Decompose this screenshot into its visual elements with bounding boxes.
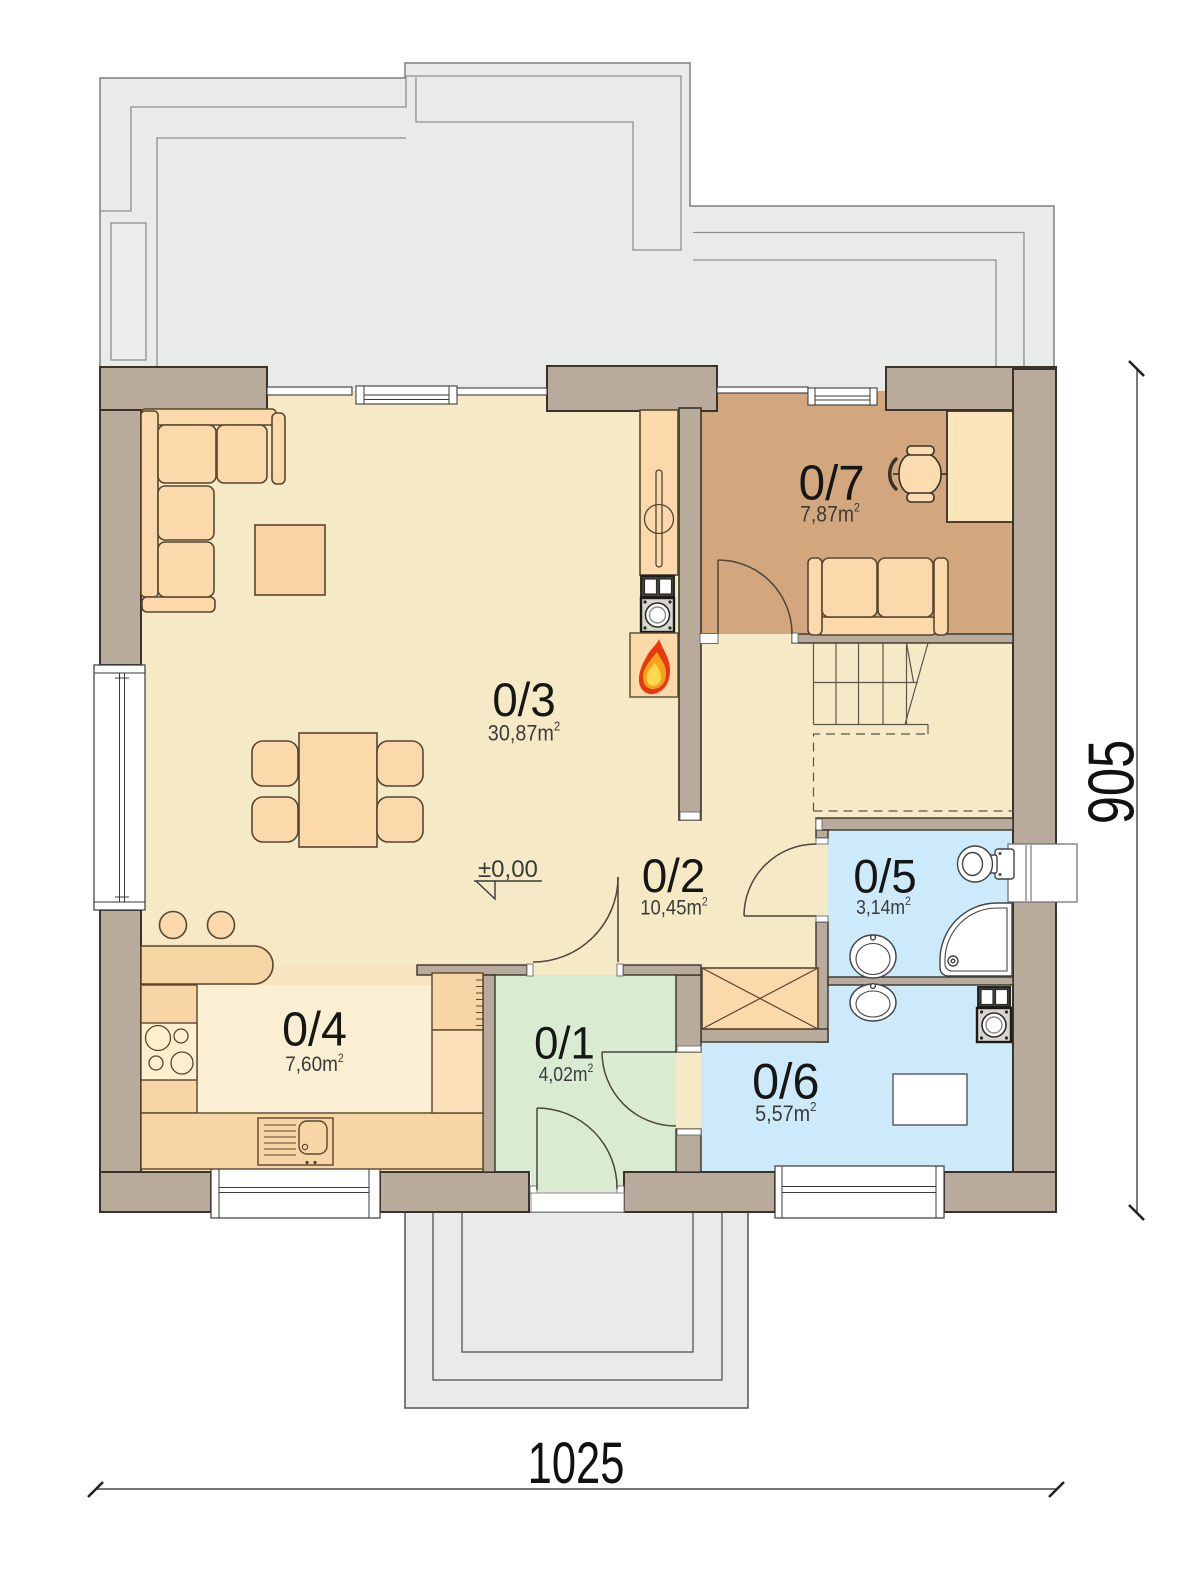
svg-text:1025: 1025 — [528, 1431, 625, 1495]
svg-text:7,87m2: 7,87m2 — [800, 502, 860, 527]
svg-text:0/2: 0/2 — [642, 849, 705, 902]
svg-text:0/1: 0/1 — [534, 1019, 595, 1069]
svg-text:0/4: 0/4 — [282, 1003, 347, 1057]
svg-text:0/3: 0/3 — [492, 673, 555, 726]
svg-text:±0,00: ±0,00 — [478, 856, 538, 883]
svg-text:3,14m2: 3,14m2 — [856, 895, 911, 918]
svg-text:5,57m2: 5,57m2 — [755, 1099, 817, 1126]
svg-text:905: 905 — [1076, 740, 1148, 825]
svg-text:4,02m2: 4,02m2 — [539, 1062, 594, 1085]
svg-text:30,87m2: 30,87m2 — [488, 719, 561, 746]
svg-text:7,60m2: 7,60m2 — [285, 1052, 343, 1076]
svg-text:10,45m2: 10,45m2 — [640, 896, 707, 920]
